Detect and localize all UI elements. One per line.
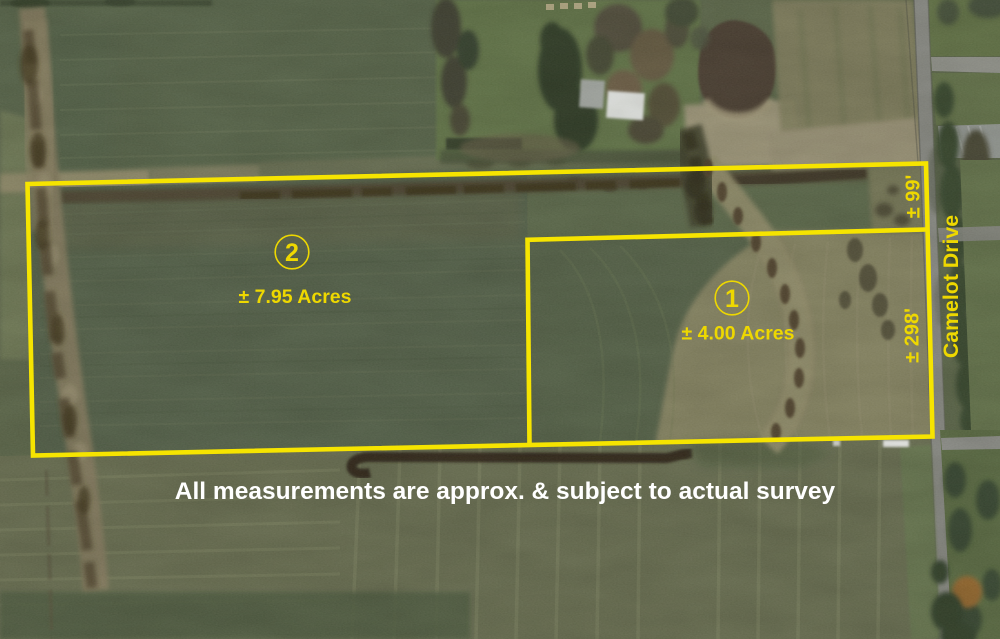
svg-text:1: 1 <box>725 285 739 313</box>
svg-text:2: 2 <box>285 239 299 267</box>
svg-text:± 7.95 Acres: ± 7.95 Acres <box>239 286 352 308</box>
svg-text:± 4.00 Acres: ± 4.00 Acres <box>682 323 795 345</box>
svg-text:± 298': ± 298' <box>902 308 924 363</box>
svg-text:All measurements are approx. &: All measurements are approx. & subject t… <box>175 478 836 505</box>
svg-text:± 99': ± 99' <box>903 175 925 219</box>
svg-text:Camelot Drive: Camelot Drive <box>939 215 963 358</box>
